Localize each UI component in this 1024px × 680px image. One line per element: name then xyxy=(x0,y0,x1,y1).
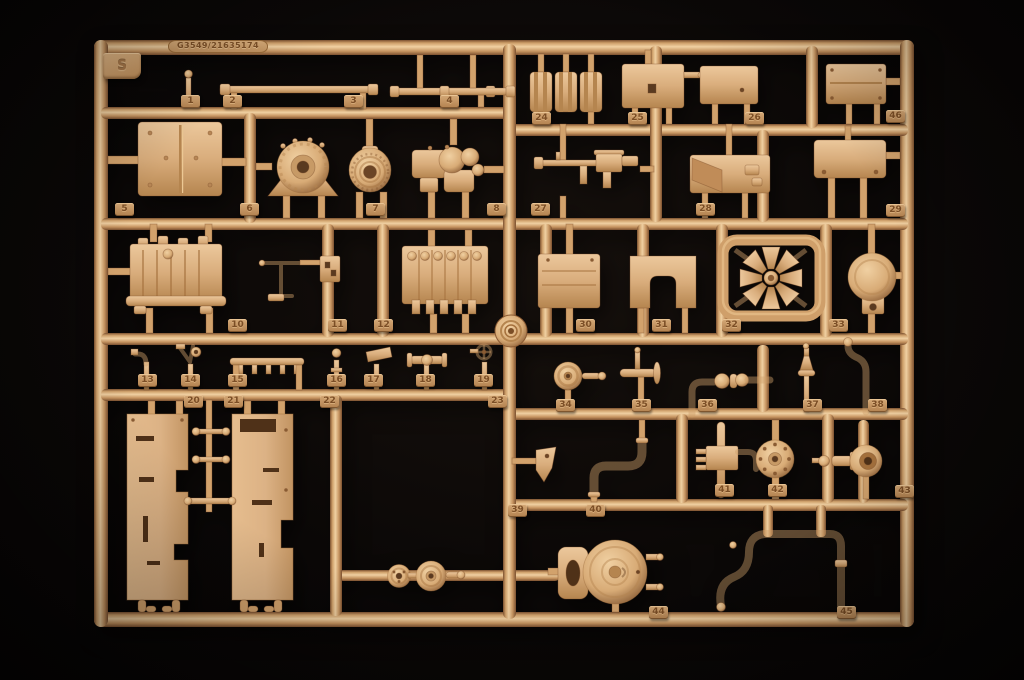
part-number-tag-46: 46 xyxy=(886,110,905,123)
part-road-wheels xyxy=(388,561,466,591)
part-number-tag-21: 21 xyxy=(224,395,243,408)
part-number-tag-23: 23 xyxy=(488,395,507,408)
part-hull-panel-20 xyxy=(127,401,188,612)
part-number-tag-19: 19 xyxy=(474,374,493,387)
part-fan-housing-44 xyxy=(548,540,664,612)
sprue-photo-svg xyxy=(0,0,1024,680)
part-number-tag-44: 44 xyxy=(649,606,668,619)
part-number-tag-22: 22 xyxy=(320,395,339,408)
part-number-tag-18: 18 xyxy=(416,374,435,387)
part-number-tag-27: 27 xyxy=(531,203,550,216)
part-number-tag-32: 32 xyxy=(722,319,741,332)
part-s-pipe-38 xyxy=(844,338,867,413)
part-number-tag-3: 3 xyxy=(344,95,363,108)
part-number-tag-11: 11 xyxy=(328,319,347,332)
part-number-tag-28: 28 xyxy=(696,203,715,216)
part-number-tag-39: 39 xyxy=(508,504,527,517)
part-number-tag-15: 15 xyxy=(228,374,247,387)
part-number-tag-42: 42 xyxy=(768,484,787,497)
part-number-tag-16: 16 xyxy=(327,374,346,387)
part-number-tag-37: 37 xyxy=(803,399,822,412)
mold-code-label: G3549/21635174 xyxy=(168,40,268,53)
part-number-tag-5: 5 xyxy=(115,203,134,216)
part-number-tag-6: 6 xyxy=(240,203,259,216)
part-number-tag-38: 38 xyxy=(868,399,887,412)
part-number-tag-45: 45 xyxy=(837,606,856,619)
part-number-tag-35: 35 xyxy=(632,399,651,412)
part-number-tag-36: 36 xyxy=(698,399,717,412)
part-cooling-fan-32 xyxy=(735,247,806,309)
part-number-tag-34: 34 xyxy=(556,399,575,412)
part-number-tag-8: 8 xyxy=(487,203,506,216)
part-hull-panel-21 xyxy=(232,401,293,612)
part-number-tag-12: 12 xyxy=(374,319,393,332)
part-number-tag-29: 29 xyxy=(886,204,905,217)
part-number-tag-13: 13 xyxy=(138,374,157,387)
part-number-tag-17: 17 xyxy=(364,374,383,387)
part-number-tag-10: 10 xyxy=(228,319,247,332)
part-number-tag-24: 24 xyxy=(532,112,551,125)
part-number-tag-14: 14 xyxy=(181,374,200,387)
part-cylinder-bank-12 xyxy=(402,230,488,333)
part-engine-block-10 xyxy=(108,224,226,333)
part-number-tag-33: 33 xyxy=(829,319,848,332)
part-number-tag-1: 1 xyxy=(181,95,200,108)
part-number-tag-25: 25 xyxy=(628,112,647,125)
part-number-tag-43: 43 xyxy=(895,485,914,498)
sprue-letter-tab: S xyxy=(103,53,141,79)
part-long-pipe-45 xyxy=(717,534,848,612)
part-machine-gun-27 xyxy=(534,124,654,218)
part-turret-ring-6 xyxy=(256,138,338,219)
part-number-tag-2: 2 xyxy=(223,95,242,108)
part-number-tag-4: 4 xyxy=(440,95,459,108)
part-number-tag-40: 40 xyxy=(586,504,605,517)
part-number-tag-41: 41 xyxy=(715,484,734,497)
part-storage-box-5 xyxy=(108,122,246,196)
part-bracket-39 xyxy=(512,447,556,482)
part-number-tag-26: 26 xyxy=(745,112,764,125)
part-bent-pipe-40 xyxy=(588,420,648,502)
part-number-tag-30: 30 xyxy=(576,319,595,332)
part-access-disc-33 xyxy=(848,224,902,333)
part-number-tag-7: 7 xyxy=(366,203,385,216)
photo-stage: G3549/21635174 S 12345678101112131415161… xyxy=(0,0,1024,680)
part-linkage-rods xyxy=(184,400,236,512)
part-number-tag-20: 20 xyxy=(184,395,203,408)
injection-gate-hub xyxy=(495,315,527,347)
part-number-tag-31: 31 xyxy=(652,319,671,332)
